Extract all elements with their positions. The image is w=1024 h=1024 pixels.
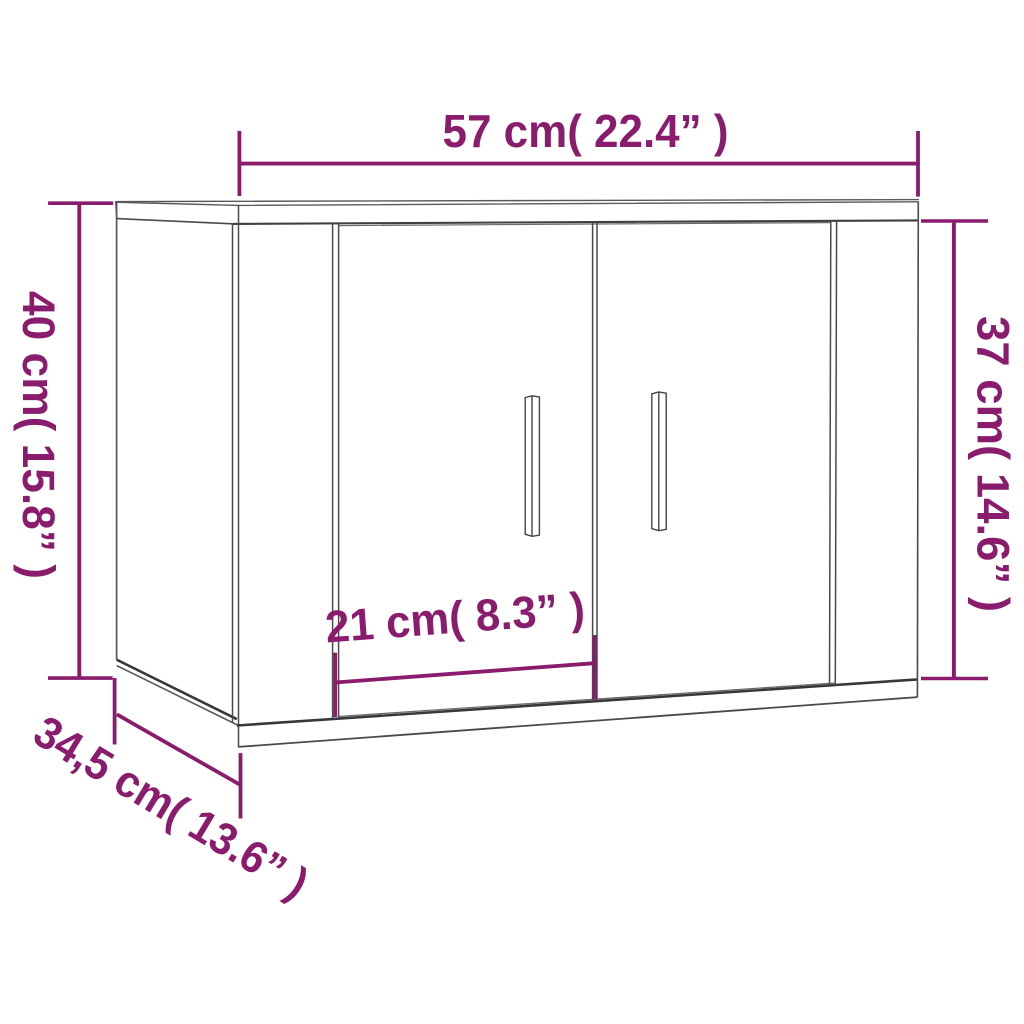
svg-text:37 cm( 14.6” ): 37 cm( 14.6” ) — [968, 316, 1019, 612]
svg-text:57 cm( 22.4” ): 57 cm( 22.4” ) — [443, 105, 729, 157]
svg-text:40 cm( 15.8” ): 40 cm( 15.8” ) — [13, 291, 64, 579]
